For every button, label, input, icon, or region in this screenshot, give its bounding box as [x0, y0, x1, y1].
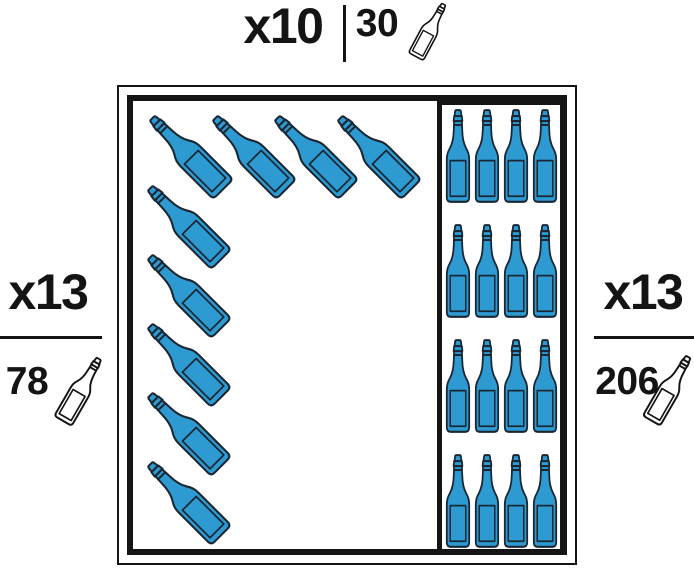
right-rack-upright-bottles: [437, 100, 565, 555]
wine-bottle-upright: [473, 224, 500, 319]
rack-row: [442, 340, 560, 435]
wine-bottle-upright: [502, 109, 529, 204]
wine-bottle-upright: [531, 109, 558, 204]
wine-bottle-upright: [473, 455, 500, 550]
wine-bottle-upright: [473, 340, 500, 435]
rack-row: [442, 224, 560, 319]
rack-row: [442, 455, 560, 550]
wine-bottle-upright: [444, 224, 471, 319]
wine-bottle-upright: [531, 455, 558, 550]
left-rack-tilted-bottles: [0, 0, 694, 571]
wine-bottle-upright: [444, 455, 471, 550]
wine-bottle-tilted: [139, 453, 234, 548]
wine-bottle-upright: [531, 340, 558, 435]
rack-row: [442, 109, 560, 204]
cellar-diagram: x10 30 x13 78 x13 206: [0, 0, 694, 571]
wine-bottle-upright: [502, 455, 529, 550]
wine-bottle-tilted: [329, 107, 424, 202]
wine-bottle-upright: [502, 224, 529, 319]
wine-bottle-upright: [444, 340, 471, 435]
wine-bottle-upright: [531, 224, 558, 319]
wine-bottle-upright: [473, 109, 500, 204]
wine-bottle-upright: [444, 109, 471, 204]
wine-bottle-upright: [502, 340, 529, 435]
